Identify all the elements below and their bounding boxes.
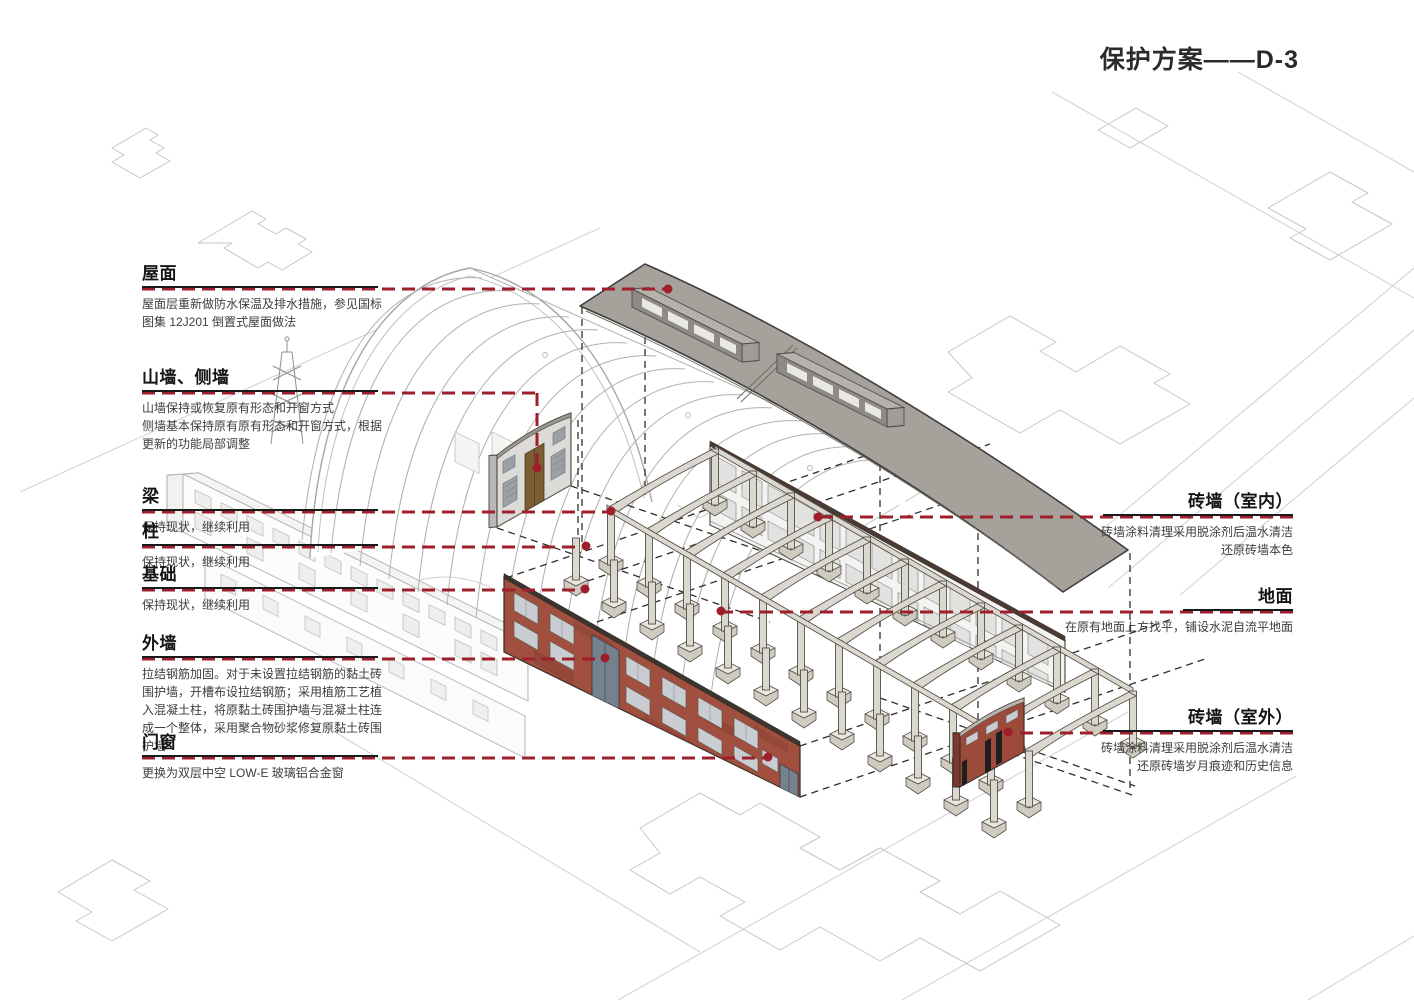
label-doors-windows-title: 门窗 — [142, 733, 378, 757]
label-ground-desc: 在原有地面上方找平，铺设水泥自流平地面 — [993, 618, 1293, 636]
label-foundation-title: 基础 — [142, 565, 378, 589]
label-roof-desc: 屋面层重新做防水保温及排水措施，参见国标 图集 12J201 倒置式屋面做法 — [142, 295, 378, 331]
label-brick-wall-exterior-desc: 砖墙涂料清理采用脱涂剂后温水清洁 还原砖墙岁月痕迹和历史信息 — [993, 739, 1293, 775]
label-doors-windows: 门窗 更换为双层中空 LOW-E 玻璃铝合金窗 — [142, 733, 378, 782]
label-gable-side-walls: 山墙、侧墙 山墙保持或恢复原有形态和开窗方式 侧墙基本保持原有原有形态和开窗方式… — [142, 368, 378, 453]
label-roof: 屋面 屋面层重新做防水保温及排水措施，参见国标 图集 12J201 倒置式屋面做… — [142, 264, 378, 331]
label-beam-title: 梁 — [142, 487, 378, 511]
label-gable-side-walls-title: 山墙、侧墙 — [142, 368, 378, 392]
label-brick-wall-interior-desc: 砖墙涂料清理采用脱涂剂后温水清洁 还原砖墙本色 — [993, 523, 1293, 559]
page-title: 保护方案——D-3 — [1100, 40, 1299, 76]
label-ground: 地面 在原有地面上方找平，铺设水泥自流平地面 — [993, 587, 1293, 636]
label-column: 柱 保持现状，继续利用 — [142, 522, 378, 571]
drawing-sheet: 保护方案——D-3 屋面 屋面层重新做防水保温及排水措施，参见国标 图集 12J… — [0, 0, 1414, 1000]
label-brick-wall-exterior-title: 砖墙（室外） — [1103, 708, 1293, 732]
label-column-title: 柱 — [142, 522, 378, 546]
label-foundation-desc: 保持现状，继续利用 — [142, 596, 378, 614]
label-exterior-wall-title: 外墙 — [142, 634, 378, 658]
label-brick-wall-exterior: 砖墙（室外） 砖墙涂料清理采用脱涂剂后温水清洁 还原砖墙岁月痕迹和历史信息 — [993, 708, 1293, 775]
label-brick-wall-interior: 砖墙（室内） 砖墙涂料清理采用脱涂剂后温水清洁 还原砖墙本色 — [993, 492, 1293, 559]
label-brick-wall-interior-title: 砖墙（室内） — [1103, 492, 1293, 516]
label-ground-title: 地面 — [1183, 587, 1293, 611]
label-doors-windows-desc: 更换为双层中空 LOW-E 玻璃铝合金窗 — [142, 764, 378, 782]
label-foundation: 基础 保持现状，继续利用 — [142, 565, 378, 614]
label-roof-title: 屋面 — [142, 264, 378, 288]
gable-door — [525, 443, 544, 511]
label-gable-side-walls-desc: 山墙保持或恢复原有形态和开窗方式 侧墙基本保持原有原有形态和开窗方式，根据 更新… — [142, 399, 378, 453]
